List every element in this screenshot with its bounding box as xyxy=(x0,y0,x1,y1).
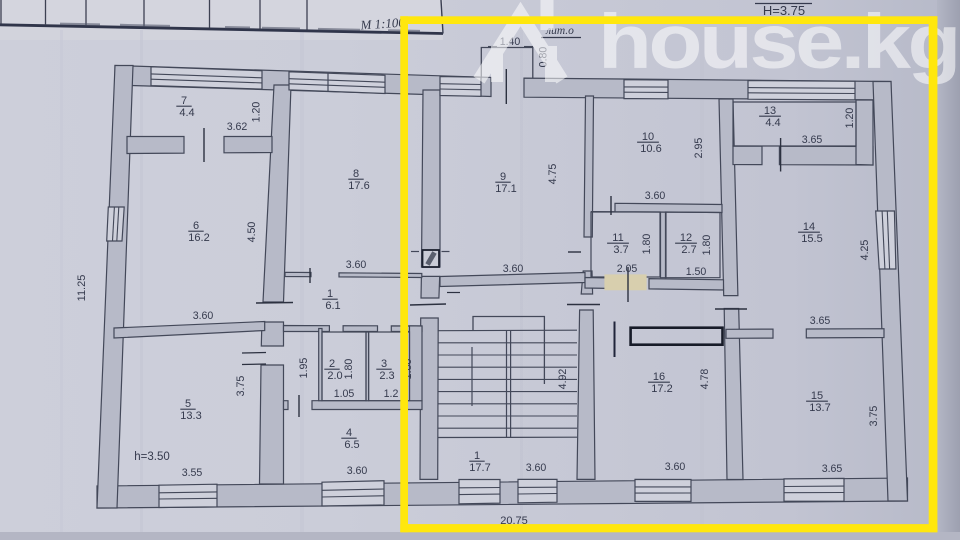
svg-text:4.25: 4.25 xyxy=(859,240,871,261)
svg-text:4.92: 4.92 xyxy=(557,369,569,390)
svg-text:11.25: 11.25 xyxy=(76,275,88,302)
svg-text:3.60: 3.60 xyxy=(346,259,367,271)
svg-text:1.80: 1.80 xyxy=(343,359,355,380)
svg-text:2.0: 2.0 xyxy=(327,370,342,382)
svg-text:4.50: 4.50 xyxy=(246,222,258,243)
svg-text:17.6: 17.6 xyxy=(348,180,369,192)
svg-text:М 1:100: М 1:100 xyxy=(359,14,406,32)
svg-text:3.60: 3.60 xyxy=(645,190,666,202)
svg-text:3.65: 3.65 xyxy=(822,463,843,475)
svg-text:3.75: 3.75 xyxy=(868,406,880,427)
svg-text:5: 5 xyxy=(185,398,191,410)
svg-text:3.60: 3.60 xyxy=(503,263,524,275)
svg-text:1: 1 xyxy=(474,450,480,462)
svg-text:1.05: 1.05 xyxy=(334,388,355,400)
svg-text:2.3: 2.3 xyxy=(379,370,394,382)
svg-text:1: 1 xyxy=(327,288,333,300)
svg-text:1.80: 1.80 xyxy=(701,235,713,256)
svg-text:3.75: 3.75 xyxy=(235,376,247,397)
svg-text:17.1: 17.1 xyxy=(495,183,516,195)
svg-text:17.2: 17.2 xyxy=(651,383,672,395)
svg-text:1.20: 1.20 xyxy=(251,102,263,123)
svg-text:13: 13 xyxy=(764,105,776,117)
svg-text:16: 16 xyxy=(653,371,665,383)
svg-text:3.60: 3.60 xyxy=(193,310,214,322)
svg-text:8: 8 xyxy=(353,168,359,180)
svg-text:2.95: 2.95 xyxy=(693,138,705,159)
svg-text:10: 10 xyxy=(642,131,654,143)
svg-text:3.60: 3.60 xyxy=(347,465,368,477)
svg-text:h=3.50: h=3.50 xyxy=(134,451,170,463)
svg-text:10.6: 10.6 xyxy=(640,143,661,155)
svg-text:2.05: 2.05 xyxy=(617,263,638,275)
svg-text:2.7: 2.7 xyxy=(681,244,696,256)
svg-text:17.7: 17.7 xyxy=(469,462,490,474)
svg-text:6.5: 6.5 xyxy=(344,439,359,451)
svg-text:2: 2 xyxy=(329,358,335,370)
svg-text:14: 14 xyxy=(803,221,815,233)
svg-text:1.95: 1.95 xyxy=(298,358,310,379)
svg-text:3.60: 3.60 xyxy=(665,461,686,473)
svg-text:6: 6 xyxy=(193,220,199,232)
svg-text:3.65: 3.65 xyxy=(810,315,831,327)
svg-text:3.55: 3.55 xyxy=(182,467,203,479)
svg-text:7: 7 xyxy=(181,95,187,107)
svg-text:15: 15 xyxy=(811,390,823,402)
svg-text:16.2: 16.2 xyxy=(188,232,209,244)
svg-text:6.1: 6.1 xyxy=(325,300,340,312)
svg-text:13.7: 13.7 xyxy=(809,402,830,414)
svg-text:1.2: 1.2 xyxy=(384,388,399,400)
svg-text:1.20: 1.20 xyxy=(844,108,856,129)
svg-text:3.62: 3.62 xyxy=(227,121,248,133)
svg-text:3: 3 xyxy=(381,358,387,370)
svg-text:1.80: 1.80 xyxy=(641,234,653,255)
svg-text:4.78: 4.78 xyxy=(699,369,711,390)
svg-text:9: 9 xyxy=(500,171,506,183)
svg-text:3.60: 3.60 xyxy=(526,462,547,474)
svg-text:4.4: 4.4 xyxy=(179,107,194,119)
svg-text:13.3: 13.3 xyxy=(180,410,201,422)
svg-text:3.7: 3.7 xyxy=(613,244,628,256)
svg-text:4.75: 4.75 xyxy=(547,164,559,185)
svg-text:4.4: 4.4 xyxy=(765,117,780,129)
svg-text:15.5: 15.5 xyxy=(801,233,822,245)
svg-text:12: 12 xyxy=(680,232,692,244)
svg-text:1.50: 1.50 xyxy=(686,266,707,278)
svg-text:4: 4 xyxy=(346,427,352,439)
svg-text:3.65: 3.65 xyxy=(802,134,823,146)
svg-text:house.kg: house.kg xyxy=(598,0,958,85)
svg-text:11: 11 xyxy=(612,232,623,244)
